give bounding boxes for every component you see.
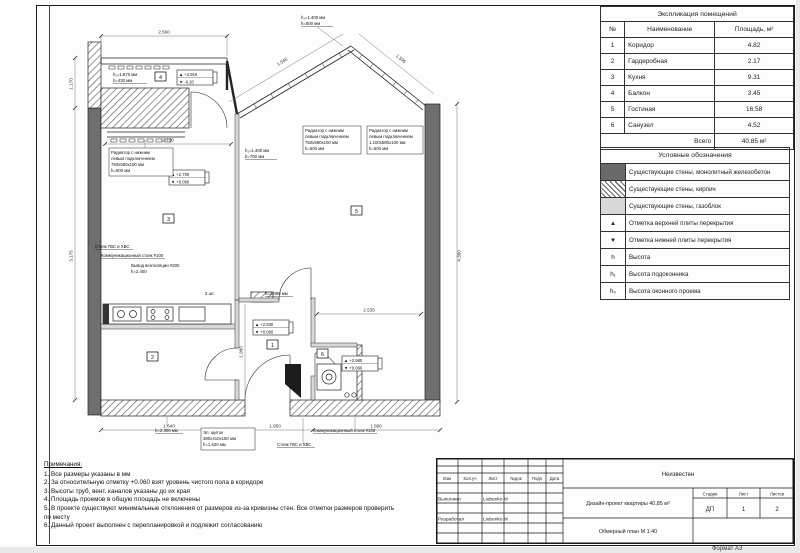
svg-text:h=2.300 мм: h=2.300 мм bbox=[155, 428, 178, 433]
notes-title: Примечания: bbox=[44, 461, 396, 470]
legend-row: h₀Высота оконного проема bbox=[601, 283, 790, 300]
elevation-mark-balcony: ▲ +2.910 ▼ -0.20 bbox=[177, 70, 217, 85]
svg-text:Стояк ГВС и ХВС: Стояк ГВС и ХВС bbox=[277, 442, 311, 447]
tb-sheet-value: 1 bbox=[742, 507, 746, 513]
svg-text:Вывод вентиляции #200: Вывод вентиляции #200 bbox=[131, 263, 180, 268]
dim-label: 3.175 bbox=[69, 250, 74, 262]
annotation-risers: Стояк ГВС и ХВС Коммуникационный стояк #… bbox=[95, 244, 293, 297]
tb-sheets-value: 2 bbox=[775, 507, 779, 513]
swatch-gasblock bbox=[601, 198, 626, 215]
triangle-up-icon: ▲ bbox=[601, 215, 626, 232]
svg-text:h=500 мм: h=500 мм bbox=[301, 21, 320, 26]
col-header-area: Площадь, м² bbox=[715, 22, 794, 38]
svg-text:Радиатор с нижним: Радиатор с нижним bbox=[111, 150, 150, 155]
tb-sheet-label: Лист bbox=[739, 492, 748, 497]
annotation-bay-radiator-right: Радиатор с нижним левым подключением 1.1… bbox=[367, 126, 423, 154]
svg-text:3: 3 bbox=[167, 217, 170, 223]
socket-icon bbox=[345, 393, 349, 397]
dim-label: 4.380 bbox=[457, 250, 462, 262]
room-number-bathroom: 6 bbox=[317, 349, 328, 358]
dim-label: 1.170 bbox=[69, 78, 74, 90]
triangle-down-icon: ▼ bbox=[601, 232, 626, 249]
svg-text:h=500 мм: h=500 мм bbox=[111, 168, 130, 173]
annotation-kitchen-window: h₁=1.400 мм b=700 мм bbox=[245, 148, 277, 160]
tb-stage-value: ДП bbox=[706, 507, 714, 513]
floor-plan: 2.560 1.545 1.595 1.170 3.175 4.380 1.64… bbox=[55, 8, 475, 453]
legend-row: Существующие стены, газоблок bbox=[601, 198, 790, 215]
tb-sheets-label: Листов bbox=[770, 492, 785, 497]
dim-label: 2.730 bbox=[162, 138, 174, 143]
elevation-lower: ▼ +0.060 bbox=[171, 180, 190, 185]
col-header-name: Наименование bbox=[625, 22, 715, 38]
legend-table: Условные обозначения Существующие стены,… bbox=[600, 147, 790, 300]
svg-text:1: 1 bbox=[271, 343, 274, 349]
tb-drawing-title: Обмерный план М 1:40 bbox=[599, 528, 657, 535]
svg-text:Радиатор с нижним: Радиатор с нижним bbox=[305, 128, 344, 133]
elevation-mark-living: ▲ +2.980 ▼ +0.060 bbox=[342, 356, 382, 371]
svg-text:Радиатор с нижним: Радиатор с нижним bbox=[369, 128, 408, 133]
room-number-wardrobe: 2 bbox=[147, 352, 158, 361]
duct-shaft bbox=[285, 364, 301, 398]
swatch-monolithic bbox=[601, 164, 626, 181]
svg-text:2 шт.: 2 шт. bbox=[205, 291, 215, 296]
dim-label: 1.595 bbox=[395, 53, 407, 64]
svg-text:левым подключением: левым подключением bbox=[305, 134, 349, 139]
title-block: Изм Кол.уч Лист №док Подп Дата Выполнил … bbox=[436, 458, 794, 544]
annotation-bay-radiator-left: Радиатор с нижним левым подключением 750… bbox=[303, 126, 361, 154]
svg-text:левым подключением: левым подключением bbox=[111, 156, 155, 161]
explication-table: Экспликация помещений № Наименование Пло… bbox=[600, 6, 794, 150]
kitchen-fixtures bbox=[103, 304, 231, 324]
elevation-mark-corridor: ▲ +2.930 ▼ +0.060 bbox=[253, 320, 293, 335]
svg-text:левым подключением: левым подключением bbox=[369, 134, 413, 139]
elevation-upper: ▲ +2.910 bbox=[179, 72, 198, 77]
annotation-bay-window: h₁=1.400 мм h=500 мм bbox=[301, 15, 343, 46]
legend-row: Существующие стены, кирпич bbox=[601, 181, 790, 198]
svg-text:Коммуникационный стояк #100: Коммуникационный стояк #100 bbox=[101, 253, 164, 258]
dim-label: 2.560 bbox=[158, 30, 170, 35]
svg-text:2: 2 bbox=[151, 355, 154, 361]
legend-row: ▼Отметка нижней плиты перекрытия bbox=[601, 232, 790, 249]
dim-label: 1.980 bbox=[239, 346, 244, 358]
tb-col-ndok: №док bbox=[510, 476, 522, 481]
svg-text:h=2.400: h=2.400 bbox=[131, 269, 147, 274]
table-row: 1Коридор4.82 bbox=[601, 38, 794, 54]
explication-title: Экспликация помещений bbox=[601, 7, 794, 22]
note-item: 5. В проекте существуют минимальные откл… bbox=[44, 505, 396, 522]
svg-text:Эл. щиток: Эл. щиток bbox=[203, 430, 223, 435]
svg-text:750х580х100 мм: 750х580х100 мм bbox=[305, 140, 338, 145]
note-item: 4. Площадь проемов в общую площадь не вк… bbox=[44, 496, 396, 505]
drawing-sheet: Формат А3 bbox=[0, 0, 796, 547]
room-number-kitchen: 3 bbox=[163, 214, 174, 223]
room-number-corridor: 1 bbox=[267, 340, 278, 349]
table-row: 3Кухня9.31 bbox=[601, 70, 794, 86]
tb-name-2: Liubenko М bbox=[483, 517, 508, 523]
annotation-kitchen-radiator: Радиатор с нижним левым подключением 750… bbox=[109, 140, 173, 176]
svg-text:1.100х580х100 мм: 1.100х580х100 мм bbox=[369, 140, 406, 145]
note-item: 2. За относительную отметку +0.060 взят … bbox=[44, 479, 396, 488]
legend-row: hВысота bbox=[601, 249, 790, 266]
tb-col-data: Дата bbox=[550, 476, 560, 481]
tb-stage-label: Стадия bbox=[703, 492, 718, 497]
dim-label: 2.535 bbox=[363, 308, 375, 313]
socket-icon bbox=[352, 393, 356, 397]
tb-project-title: Дизайн-проект квартиры 40,85 м² bbox=[586, 500, 670, 507]
table-row: 6Санузел4.52 bbox=[601, 118, 794, 134]
table-row: 5Гостиная16.58 bbox=[601, 102, 794, 118]
svg-text:5: 5 bbox=[355, 209, 358, 215]
tb-col-koluch: Кол.уч bbox=[464, 476, 477, 481]
svg-text:h=1.620 мм: h=1.620 мм bbox=[203, 442, 226, 447]
svg-text:4: 4 bbox=[159, 75, 162, 81]
note-item: 6. Данный проект выполнен с перепланиров… bbox=[44, 522, 396, 531]
tb-col-list: Лист bbox=[488, 476, 497, 481]
elevation-upper: ▲ +2.930 bbox=[255, 322, 274, 327]
dim-label: 1.950 bbox=[269, 424, 281, 429]
format-label: Формат А3 bbox=[712, 546, 742, 552]
legend-title: Условные обозначения bbox=[601, 148, 790, 164]
svg-text:h=430 мм: h=430 мм bbox=[113, 78, 132, 83]
table-row: 4Балкон3.45 bbox=[601, 86, 794, 102]
table-row: 2Гардеробная2.17 bbox=[601, 54, 794, 70]
tb-col-izm: Изм bbox=[443, 476, 451, 481]
elevation-lower: ▼ -0.20 bbox=[179, 80, 195, 85]
svg-text:h=2.080 мм: h=2.080 мм bbox=[265, 291, 288, 296]
svg-text:h=500 мм: h=500 мм bbox=[305, 146, 324, 151]
svg-text:h₁=1.400 мм: h₁=1.400 мм bbox=[301, 15, 325, 20]
room-number-balcony: 4 bbox=[155, 72, 166, 81]
svg-text:6: 6 bbox=[321, 352, 324, 358]
tb-col-podp: Подп bbox=[532, 476, 543, 481]
elevation-lower: ▼ +0.060 bbox=[344, 366, 363, 371]
svg-text:h₁=1.870 мм: h₁=1.870 мм bbox=[113, 72, 137, 77]
elevation-mark-kitchen: ▲ +2.700 ▼ +0.060 bbox=[169, 170, 209, 185]
elevation-lower: ▼ +0.060 bbox=[255, 330, 274, 335]
svg-text:b=700 мм: b=700 мм bbox=[245, 154, 264, 159]
legend-row: ▲Отметка верхней плиты перекрытия bbox=[601, 215, 790, 232]
svg-text:Стояк ГВС и ХВС: Стояк ГВС и ХВС bbox=[95, 244, 129, 249]
svg-text:750х580х100 мм: 750х580х100 мм bbox=[111, 162, 144, 167]
annotation-balcony-window: h₁=1.870 мм h=430 мм bbox=[113, 72, 147, 84]
legend-row: h₁Высота подоконника bbox=[601, 266, 790, 283]
annotation-bottom: h=2.300 мм Эл. щиток 380х410х150 мм h=1.… bbox=[155, 417, 377, 450]
tb-role-1: Выполнил bbox=[438, 497, 461, 503]
tb-role-2: Разработал bbox=[438, 517, 464, 523]
elevation-upper: ▲ +2.700 bbox=[171, 172, 190, 177]
tb-company: Неизвестен bbox=[662, 472, 695, 478]
room-number-living: 5 bbox=[351, 206, 362, 215]
dim-label: 1.545 bbox=[276, 56, 289, 66]
legend-row: Существующие стены, монолитный железобет… bbox=[601, 164, 790, 181]
svg-text:Коммуникационный стояк #100: Коммуникационный стояк #100 bbox=[313, 428, 376, 433]
elevation-upper: ▲ +2.980 bbox=[344, 358, 363, 363]
col-header-num: № bbox=[601, 22, 625, 38]
svg-text:h=500 мм: h=500 мм bbox=[369, 146, 388, 151]
note-item: 1. Все размеры указаны в мм bbox=[44, 471, 396, 480]
notes-block: Примечания: 1. Все размеры указаны в мм … bbox=[44, 461, 396, 531]
swatch-brick bbox=[601, 181, 626, 198]
svg-text:380х410х150 мм: 380х410х150 мм bbox=[203, 436, 236, 441]
tb-name-1: Liubenko М bbox=[483, 497, 508, 503]
svg-text:h₁=1.400 мм: h₁=1.400 мм bbox=[245, 148, 269, 153]
